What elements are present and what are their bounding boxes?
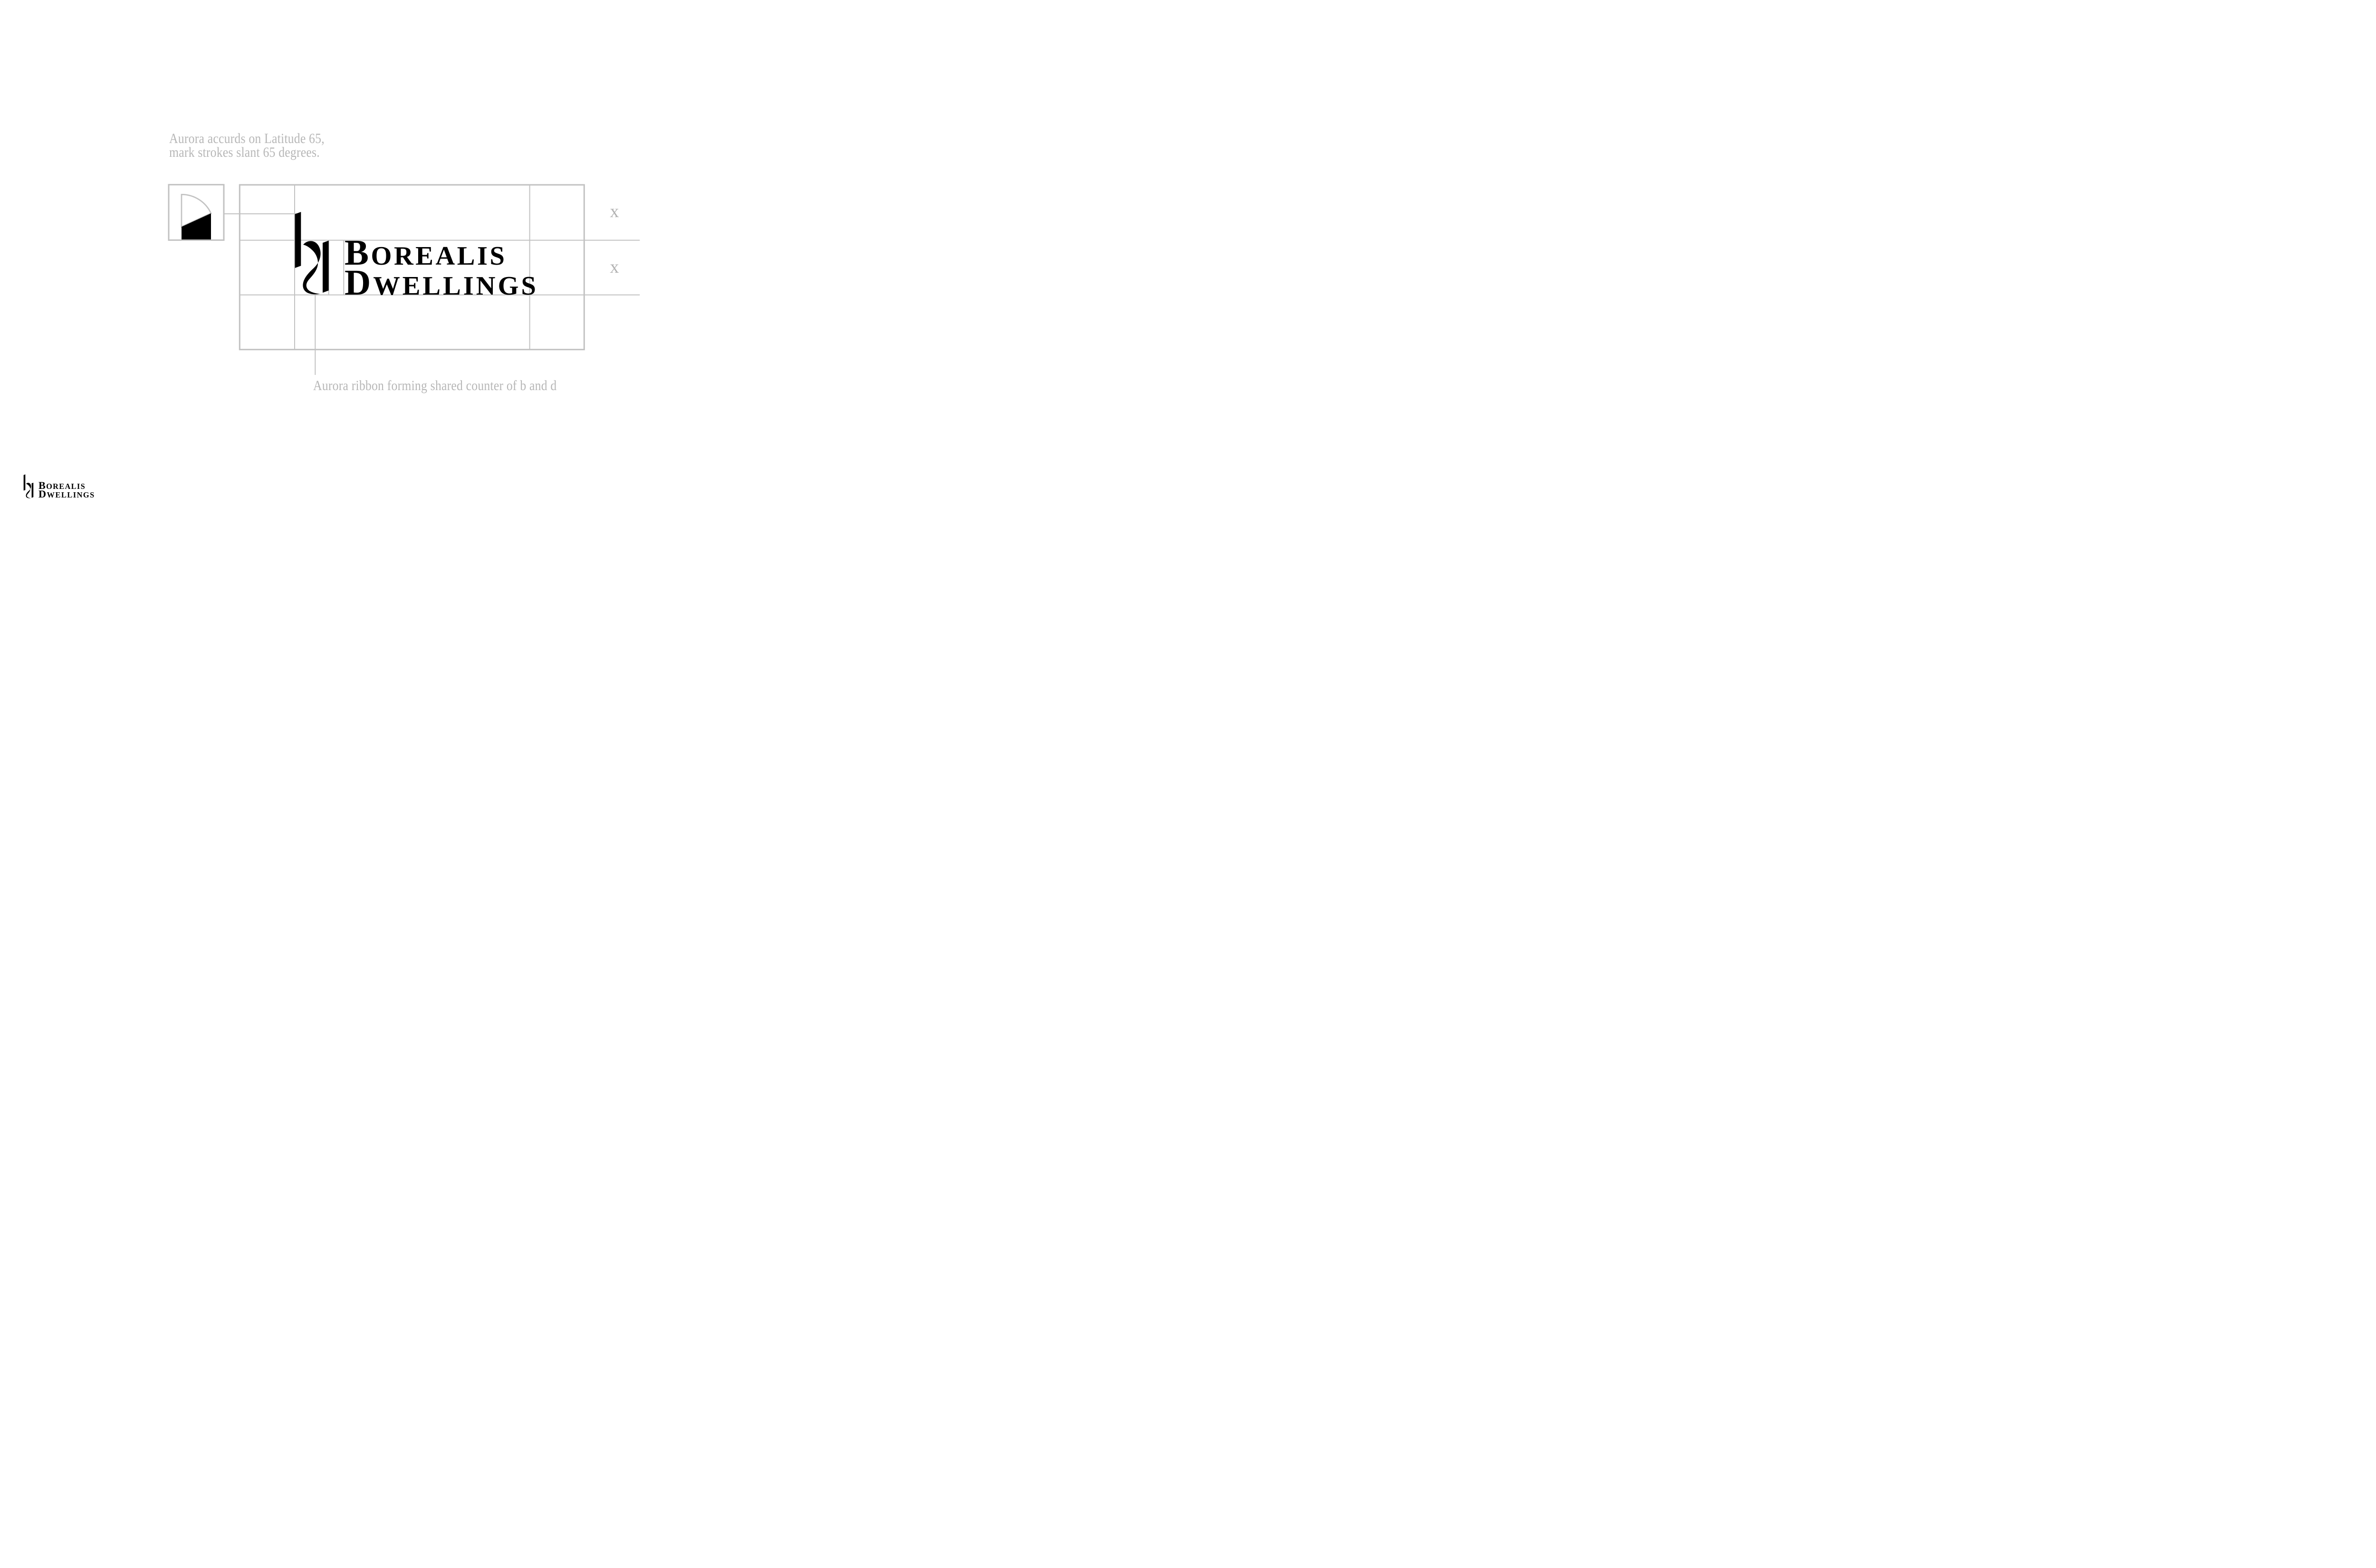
x-unit-label-row2: x [610,258,619,276]
slant-caption-line2: mark strokes slant 65 degrees. [169,145,325,159]
slant-angle-fill [182,213,211,239]
wordmark-line2-initial: D [345,262,373,303]
ribbon-caption: Aurora ribbon forming shared counter of … [313,379,556,392]
logo-mark-large [295,212,329,294]
brand-spec-sheet: Aurora accurds on Latitude 65, mark stro… [0,0,808,523]
x-unit-label-row1: x [610,202,619,220]
wordmark-line2: DWELLINGS [345,265,538,301]
slant-detail-box [169,185,297,240]
footer-wordmark-line2-initial: D [38,488,47,500]
slant-caption: Aurora accurds on Latitude 65, mark stro… [169,132,325,159]
footer-logo-mark [24,474,34,498]
wordmark-line2-rest: WELLINGS [373,271,538,301]
slant-caption-line1: Aurora accurds on Latitude 65, [169,132,325,145]
footer-wordmark-line2-rest: WELLINGS [47,490,95,499]
footer-wordmark-line2: DWELLINGS [38,489,95,499]
